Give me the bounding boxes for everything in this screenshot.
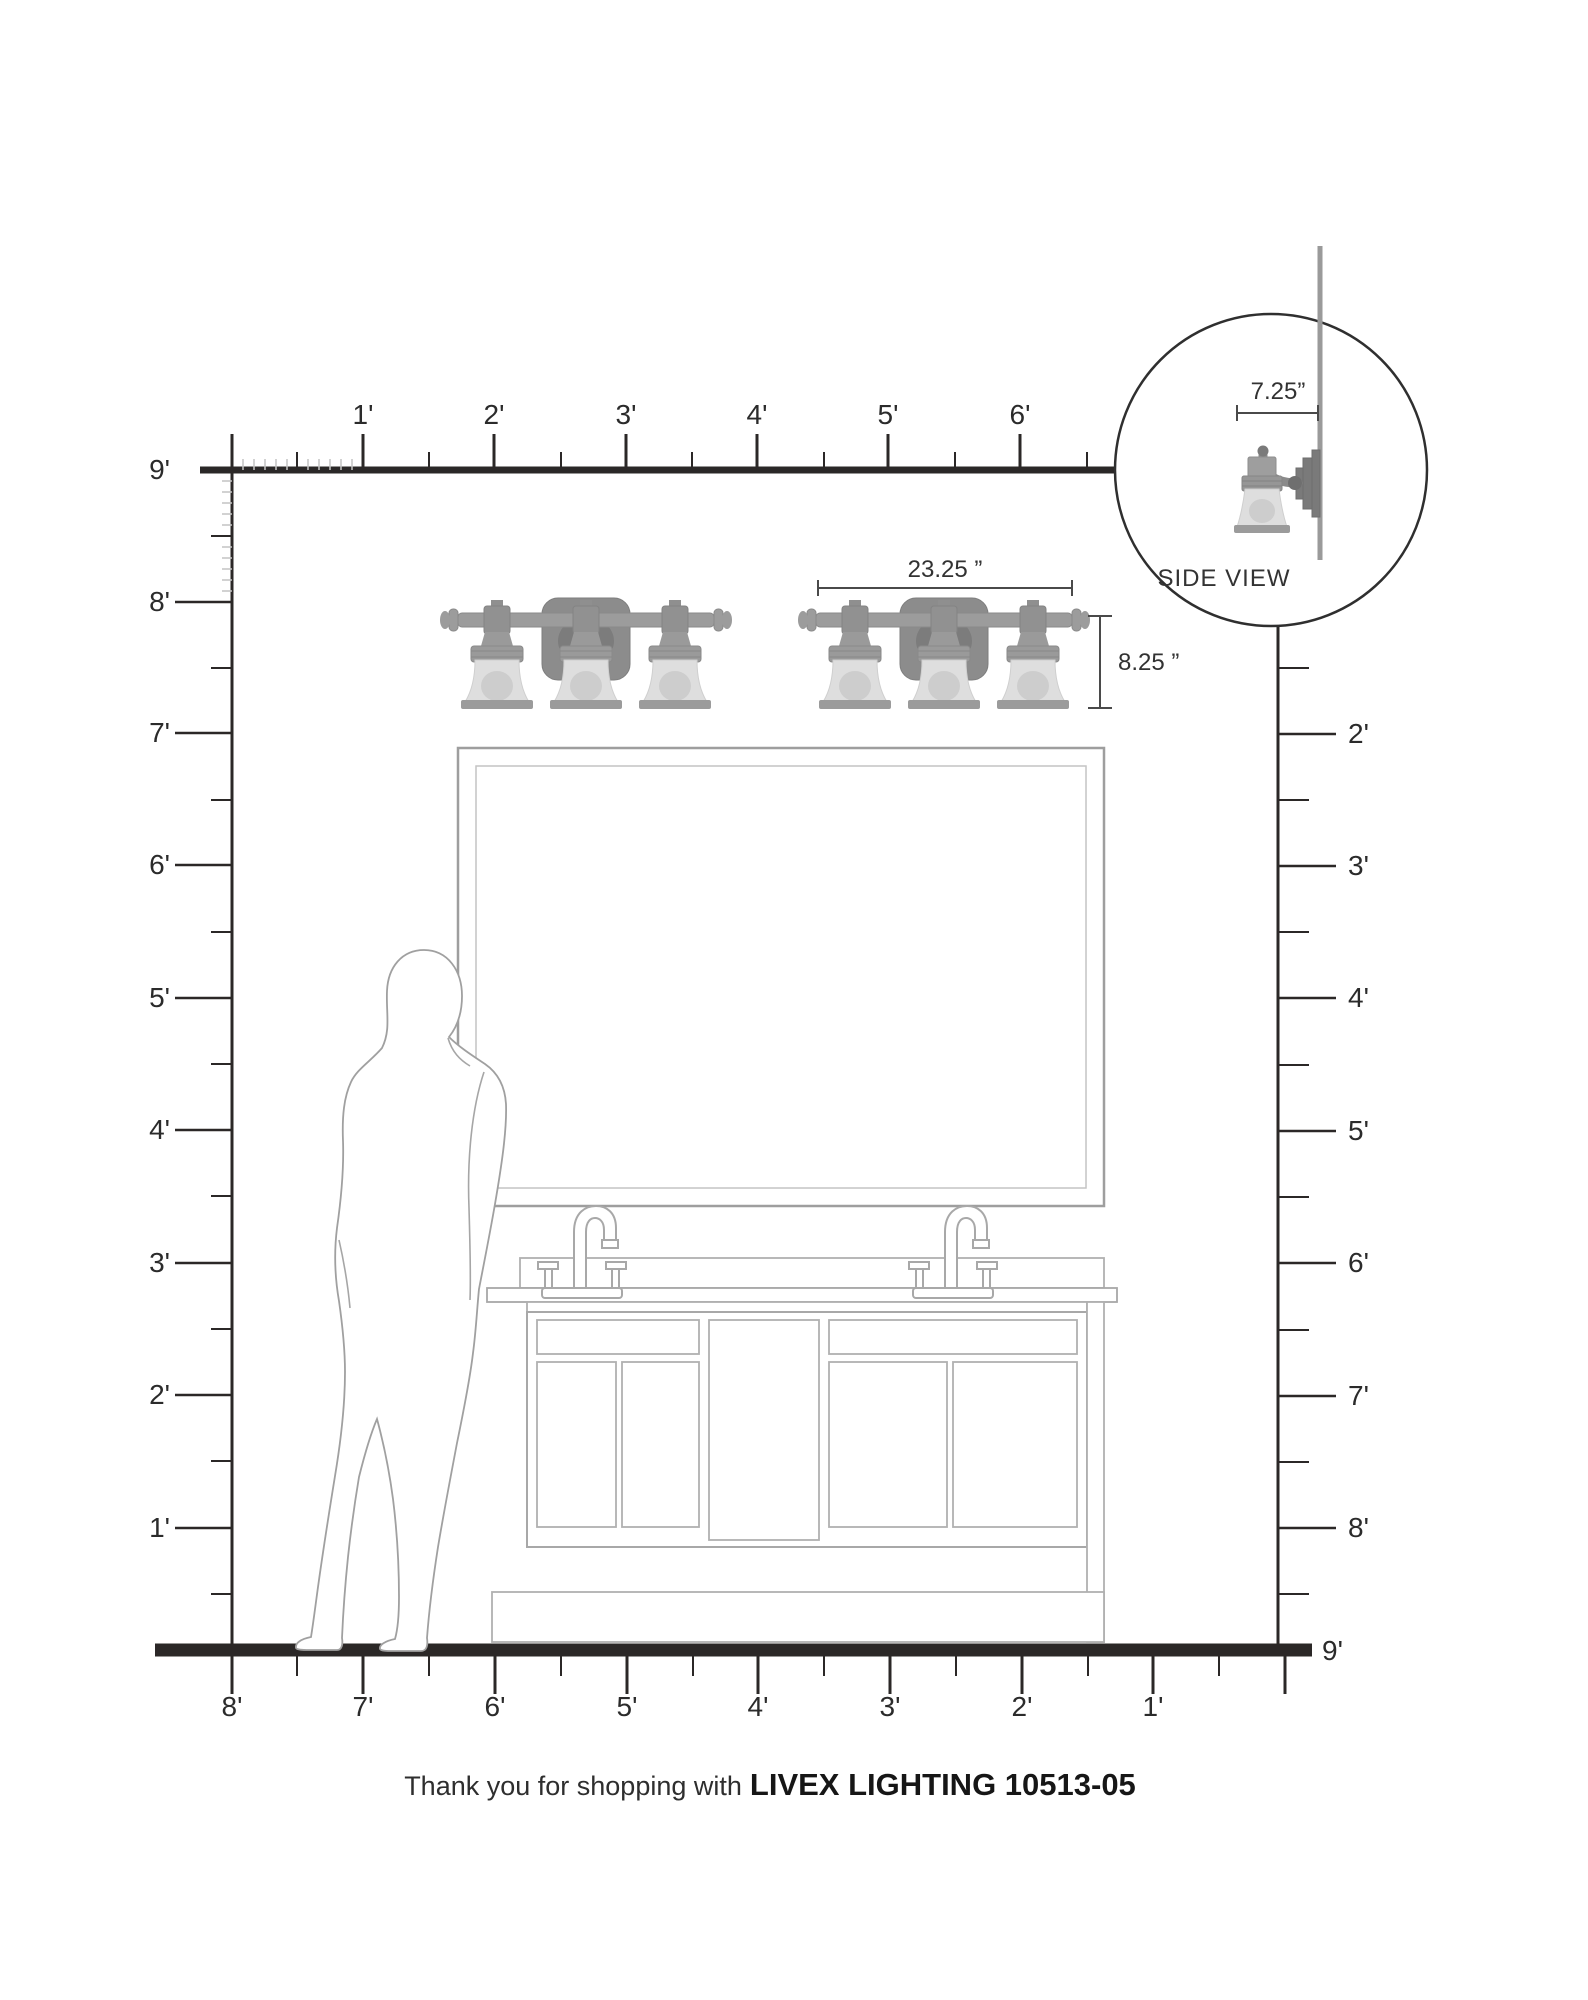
right-label-5: 5' (1348, 1115, 1369, 1146)
faucet-handle-right-post (983, 1269, 990, 1288)
bar-endcap-left (449, 609, 458, 631)
shade-tee (573, 606, 599, 634)
door-panel-2 (622, 1362, 699, 1527)
shade-cap (481, 632, 513, 646)
bottom-label-6: 6' (485, 1691, 506, 1722)
right-label-2: 2' (1348, 718, 1369, 749)
top-ruler: 1' 2' 3' 4' 5' 6' (200, 399, 1114, 470)
cabinet-side-gable (1087, 1302, 1104, 1642)
left-label-6: 6' (149, 849, 170, 880)
sconce-bulb (1249, 499, 1275, 523)
vanity-light-fixtures (440, 598, 1090, 709)
width-dimension-label: 23.25 ” (908, 556, 983, 583)
faucet-handle-left-post (545, 1269, 552, 1288)
right-label-4: 4' (1348, 982, 1369, 1013)
bottom-label-7: 7' (353, 1691, 374, 1722)
side-view-inset: 7.25” SIDE VIEW (1115, 246, 1427, 626)
mirror-glass (476, 766, 1086, 1188)
right-label-6: 6' (1348, 1247, 1369, 1278)
height-dimension: 8.25 ” (1088, 616, 1179, 708)
faucet-handle-left-post (916, 1269, 923, 1288)
bottom-label-2: 2' (1012, 1691, 1033, 1722)
depth-dimension-label: 7.25” (1251, 378, 1306, 405)
shade-bulb (1017, 671, 1049, 701)
bar-finial-right (1080, 611, 1090, 629)
bar-finial-left (798, 611, 808, 629)
faucet-handle-right (606, 1262, 626, 1269)
shade-tee (662, 606, 688, 634)
sconce-arm-joint (1288, 476, 1302, 490)
shade-rim (550, 700, 622, 709)
left-label-4: 4' (149, 1114, 170, 1145)
faucet-handle-left (538, 1262, 558, 1269)
shade-bulb (659, 671, 691, 701)
top-label-4: 4' (747, 399, 768, 430)
shade-cap (570, 632, 602, 646)
width-dimension: 23.25 ” (818, 556, 1072, 596)
top-label-3: 3' (616, 399, 637, 430)
footer-product: LIVEX LIGHTING 10513-05 (750, 1767, 1136, 1802)
bar-finial-right (722, 611, 732, 629)
door-panel-3 (829, 1362, 947, 1527)
drawer-front-right (829, 1320, 1077, 1354)
faucet-handle-right (977, 1262, 997, 1269)
vanity-light-left (440, 598, 732, 709)
bottom-label-1: 1' (1143, 1691, 1164, 1722)
top-label-6: 6' (1010, 399, 1031, 430)
right-ruler-foot-ticks (1278, 734, 1336, 1528)
bottom-end-label-9: 9' (1322, 1635, 1343, 1666)
diagram-page: 1' 2' 3' 4' 5' 6' 9' 8' 7' 6' 5' 4' 3' 2… (0, 0, 1588, 2000)
shade-rim (997, 700, 1069, 709)
bottom-label-5: 5' (617, 1691, 638, 1722)
shade-bulb (481, 671, 513, 701)
center-panel (709, 1320, 819, 1540)
bar-endcap-right (1072, 609, 1081, 631)
left-label-9: 9' (149, 454, 170, 485)
right-label-3: 3' (1348, 850, 1369, 881)
bottom-label-3: 3' (880, 1691, 901, 1722)
left-ruler-half-ticks (211, 536, 232, 1594)
top-ruler-foot-ticks (232, 434, 1020, 470)
height-dimension-label: 8.25 ” (1118, 649, 1179, 676)
faucet-handle-left (909, 1262, 929, 1269)
shade-cap (928, 632, 960, 646)
sconce-rim (1234, 525, 1290, 533)
bar-finial-left (440, 611, 450, 629)
right-label-7: 7' (1348, 1380, 1369, 1411)
scale-diagram: 1' 2' 3' 4' 5' 6' 9' 8' 7' 6' 5' 4' 3' 2… (0, 0, 1588, 2000)
footer-text: Thank you for shopping withLIVEX LIGHTIN… (404, 1767, 1136, 1802)
shade-bulb (928, 671, 960, 701)
footer-prefix: Thank you for shopping with (404, 1771, 742, 1801)
shade-tee (1020, 606, 1046, 634)
shade-bulb (839, 671, 871, 701)
faucet-nozzle (973, 1240, 989, 1248)
counter-apron (527, 1302, 1087, 1312)
faucet-right (909, 1206, 997, 1298)
shade-cap (1017, 632, 1049, 646)
left-label-3: 3' (149, 1247, 170, 1278)
left-label-5: 5' (149, 982, 170, 1013)
height-dimension-line (1088, 616, 1112, 708)
drawer-front-left (537, 1320, 699, 1354)
left-label-8: 8' (149, 586, 170, 617)
shade-rim (908, 700, 980, 709)
vanity-light-right (798, 598, 1090, 709)
right-ruler: 2' 3' 4' 5' 6' 7' 8' (1278, 624, 1369, 1650)
top-label-1: 1' (353, 399, 374, 430)
bar-endcap-right (714, 609, 723, 631)
faucet-nozzle (602, 1240, 618, 1248)
top-label-5: 5' (878, 399, 899, 430)
shade-rim (461, 700, 533, 709)
bottom-label-8: 8' (222, 1691, 243, 1722)
bottom-ruler-foot-ticks (232, 1656, 1285, 1694)
shade-bulb (570, 671, 602, 701)
shade-cap (659, 632, 691, 646)
bottom-label-4: 4' (748, 1691, 769, 1722)
left-label-7: 7' (149, 717, 170, 748)
shade-tee (484, 606, 510, 634)
side-view-caption: SIDE VIEW (1157, 565, 1290, 592)
left-ruler: 9' 8' 7' 6' 5' 4' 3' 2' 1' (149, 434, 232, 1650)
faucet-base (542, 1288, 622, 1298)
bar-endcap-left (807, 609, 816, 631)
top-label-2: 2' (484, 399, 505, 430)
faucet-handle-right-post (612, 1269, 619, 1288)
door-panel-1 (537, 1362, 616, 1527)
sconce-backplate-1 (1312, 450, 1320, 517)
faucet-base (913, 1288, 993, 1298)
left-label-1: 1' (149, 1512, 170, 1543)
right-label-8: 8' (1348, 1512, 1369, 1543)
cabinet-plinth (492, 1592, 1104, 1642)
shade-tee (842, 606, 868, 634)
sconce-cap (1248, 457, 1276, 477)
sconce-finial (1258, 446, 1269, 457)
shade-rim (639, 700, 711, 709)
mirror (458, 748, 1104, 1206)
shade-tee (931, 606, 957, 634)
shade-cap (839, 632, 871, 646)
faucet-left (538, 1206, 626, 1298)
shade-rim (819, 700, 891, 709)
sconce-backplate-2 (1303, 458, 1312, 509)
door-panel-4 (953, 1362, 1077, 1527)
left-label-2: 2' (149, 1379, 170, 1410)
vanity-cabinet (487, 1258, 1117, 1642)
